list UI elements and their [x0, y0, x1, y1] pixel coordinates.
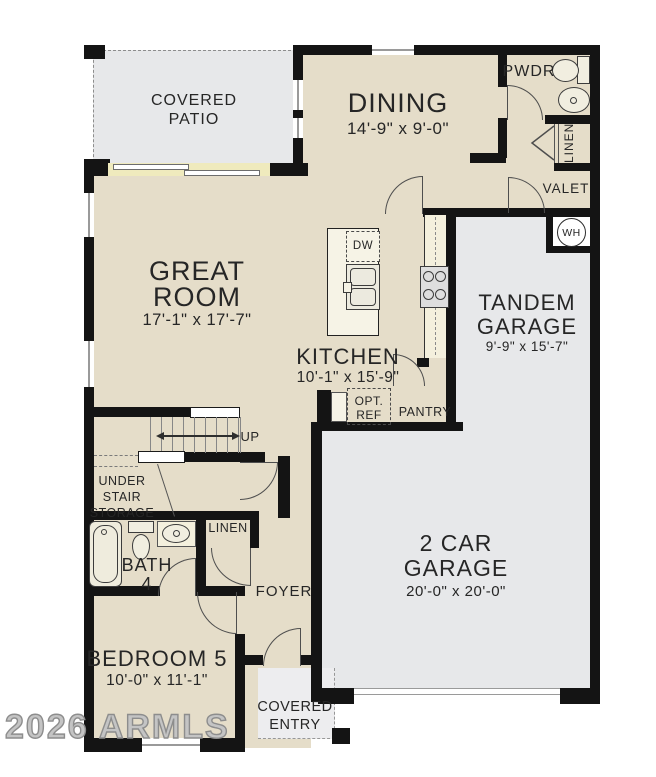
- stair-base: [138, 451, 185, 463]
- up-arrow-head-right: [232, 432, 240, 440]
- wall: [250, 511, 259, 548]
- armls-watermark: 2026 ARMLS: [5, 708, 230, 747]
- wall: [300, 655, 312, 665]
- pwdr-label: PWDR: [503, 64, 556, 80]
- wall: [84, 45, 105, 59]
- wall: [417, 358, 429, 367]
- bedroom5-label: BEDROOM 5: [86, 648, 227, 670]
- wall: [293, 45, 600, 55]
- covered-entry-label: ENTRY: [269, 718, 320, 733]
- under-stair-storage-label: STAIR: [103, 491, 141, 504]
- dining-dims: 14'-9" x 9'-0": [347, 120, 449, 137]
- linen-upper-label: LINEN: [562, 122, 576, 164]
- window: [84, 193, 94, 237]
- up-arrow: [163, 435, 233, 437]
- wall: [293, 55, 303, 167]
- garage-2car-label: GARAGE: [404, 557, 508, 580]
- wall: [498, 118, 507, 158]
- sink-drain: [570, 97, 577, 104]
- wall: [311, 422, 322, 702]
- kitchen-sink-icon: [346, 264, 380, 310]
- bath4-label: BATH: [122, 556, 173, 574]
- wall: [446, 212, 456, 428]
- dishwasher-label: DW: [353, 241, 373, 253]
- wall: [278, 456, 290, 518]
- bath4-label: 4: [141, 575, 152, 593]
- linen-hall-label: LINEN: [208, 522, 247, 535]
- bifold-door-icon: [529, 124, 555, 162]
- window: [84, 341, 94, 387]
- under-stair-storage-label: UNDER: [99, 475, 146, 488]
- linen-shelf-line: [554, 124, 555, 163]
- dining-label: DINING: [348, 90, 449, 117]
- up-arrow-head-left: [156, 432, 164, 440]
- wall: [196, 511, 206, 596]
- water-heater-icon: WH: [557, 218, 586, 247]
- sliding-door: [108, 163, 270, 176]
- great-room-label: ROOM: [153, 284, 241, 311]
- wall: [590, 45, 600, 704]
- opt-ref-label: REF: [356, 409, 382, 421]
- understair-dashed-line: [94, 466, 138, 467]
- foyer-label: FOYER: [256, 584, 313, 599]
- opt-ref-label: OPT.: [355, 395, 384, 407]
- toilet-icon: [128, 521, 154, 533]
- valet-label: VALET: [543, 182, 590, 196]
- tandem-garage-label: GARAGE: [477, 316, 577, 338]
- window: [372, 45, 414, 55]
- great-room-dims: 17'-1" x 17'-7": [143, 312, 252, 329]
- bedroom5-dims: 10'-0" x 11'-1": [106, 673, 208, 689]
- garage-2car-dims: 20'-0" x 20'-0": [406, 584, 506, 599]
- wall: [332, 728, 350, 744]
- garage-2car-label: 2 CAR: [420, 532, 493, 555]
- wall: [235, 634, 245, 752]
- cooktop-icon: [420, 266, 449, 308]
- tandem-garage-label: TANDEM: [478, 292, 575, 314]
- floor-plan: WH COVERED PATIO DINING 14'-9" x 9'-0" P…: [0, 0, 656, 777]
- toilet-icon: [552, 59, 579, 82]
- bathtub-icon: [89, 521, 122, 587]
- pantry-label: PANTRY: [399, 406, 452, 419]
- ref-side-counter: [331, 392, 347, 422]
- understair-dashed-line: [94, 455, 138, 456]
- wall: [560, 688, 600, 704]
- kitchen-dims: 10'-1" x 15'-9": [297, 370, 400, 386]
- great-room-label: GREAT: [149, 258, 245, 285]
- covered-entry-label: COVERED: [257, 700, 332, 715]
- linen-shelf-line: [558, 124, 559, 163]
- wall: [185, 452, 265, 462]
- up-label: UP: [240, 430, 259, 443]
- window: [293, 80, 303, 110]
- covered-patio-label: PATIO: [169, 112, 220, 128]
- window: [293, 118, 303, 138]
- wall: [84, 407, 190, 417]
- wall: [546, 246, 593, 253]
- covered-patio-label: COVERED: [151, 93, 237, 109]
- sink-drain: [173, 530, 180, 537]
- water-heater-label: WH: [562, 227, 581, 239]
- under-stair-storage-label: STORAGE: [90, 507, 154, 520]
- tandem-garage-dims: 9'-9" x 15'-7": [486, 340, 569, 354]
- wall: [245, 655, 263, 665]
- kitchen-label: KITCHEN: [296, 346, 400, 368]
- garage-door: [354, 688, 560, 695]
- wall: [554, 163, 600, 171]
- wall: [270, 163, 308, 176]
